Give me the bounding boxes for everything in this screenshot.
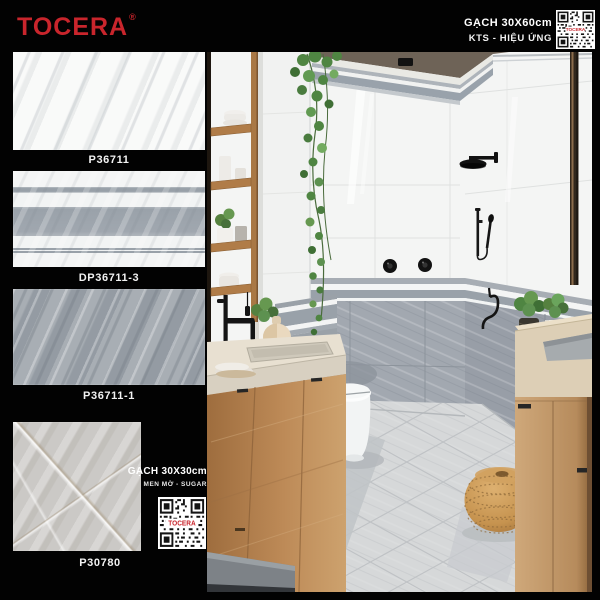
header-size-label: GẠCH 30X60cm [464,17,552,29]
right-vanity [514,291,592,592]
brand-name: TOCERA [17,13,128,41]
qr-code-icon: TOCERA [158,497,206,549]
qr-center-text: TOCERA [566,27,586,32]
tile-code-label: P36711-1 [13,390,205,402]
bathroom-scene-photo [207,52,592,592]
tile-code-label: P30780 [13,557,187,569]
header-info: GẠCH 30X60cm KTS - HIỆU ỨNG [464,17,552,44]
mirror-frame [570,52,579,285]
cabinet-handle [518,404,531,409]
brand-logo: TOCERA® [17,15,136,40]
wood-cabinet-right [515,397,592,592]
registered-mark: ® [129,12,137,22]
floor-finish-label: MEN MỜ - SUGAR [77,481,207,488]
tile-swatch-stripe-deco [13,171,205,267]
floor-tile-info: GẠCH 30X30cm MEN MỜ - SUGAR [77,466,207,488]
tile-code-label: P36711 [13,154,205,166]
qr-center-text: TOCERA [168,520,195,527]
tile-swatch-white-marble [13,52,205,150]
floor-size-label: GẠCH 30X30cm [77,466,207,477]
ceiling-vent [398,58,413,66]
qr-code-icon: TOCERA [556,10,595,49]
tile-swatch-gray-marble [13,289,205,385]
header-finish-label: KTS - HIỆU ỨNG [464,33,552,44]
tile-code-label: DP36711-3 [13,272,205,284]
tocera-tile-ad: TOCERA® GẠCH 30X60cm KTS - HIỆU ỨNG TOCE… [0,0,600,600]
